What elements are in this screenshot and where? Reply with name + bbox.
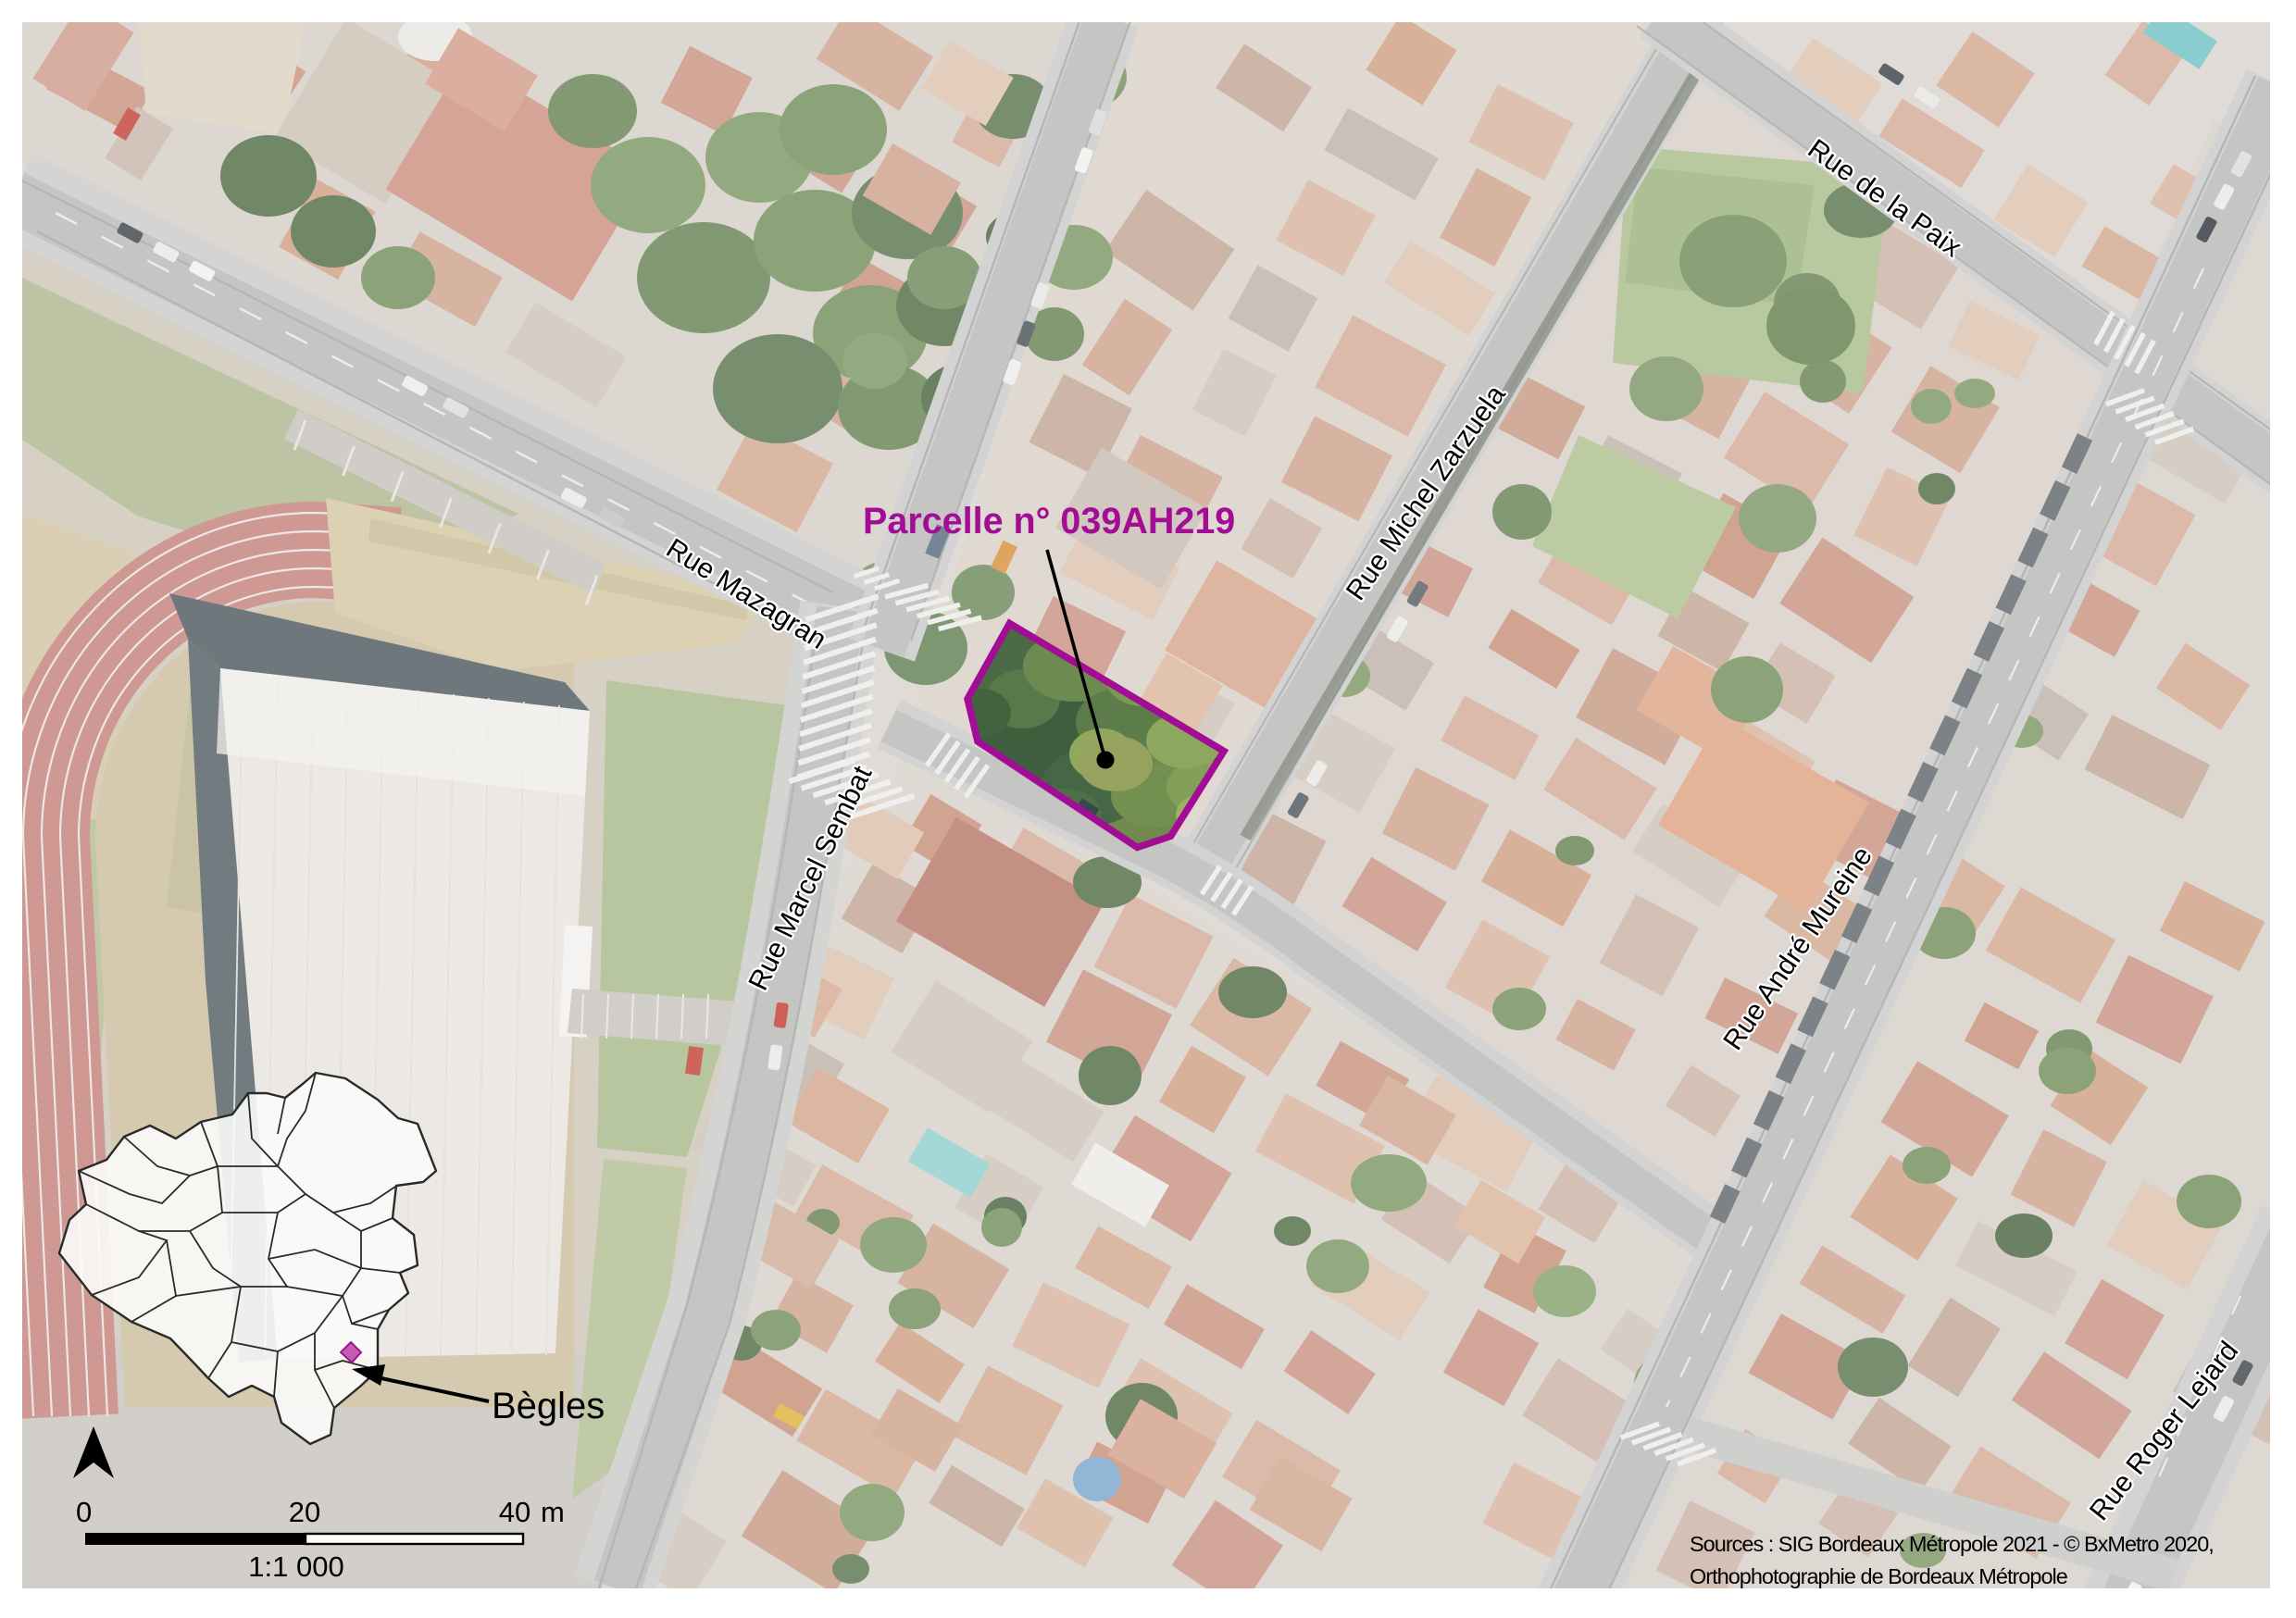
svg-text:Orthophotographie de Bordeaux: Orthophotographie de Bordeaux Métropole: [1690, 1564, 2068, 1588]
svg-text:Sources : SIG Bordeaux Métropo: Sources : SIG Bordeaux Métropole 2021 - …: [1690, 1532, 2214, 1556]
svg-text:20: 20: [289, 1496, 320, 1528]
svg-text:Bègles: Bègles: [492, 1386, 605, 1426]
svg-text:m: m: [541, 1496, 565, 1528]
svg-text:1:1 000: 1:1 000: [248, 1550, 343, 1583]
svg-text:40: 40: [499, 1496, 530, 1528]
svg-text:0: 0: [76, 1496, 92, 1528]
svg-text:Parcelle n° 039AH219: Parcelle n° 039AH219: [863, 501, 1235, 541]
